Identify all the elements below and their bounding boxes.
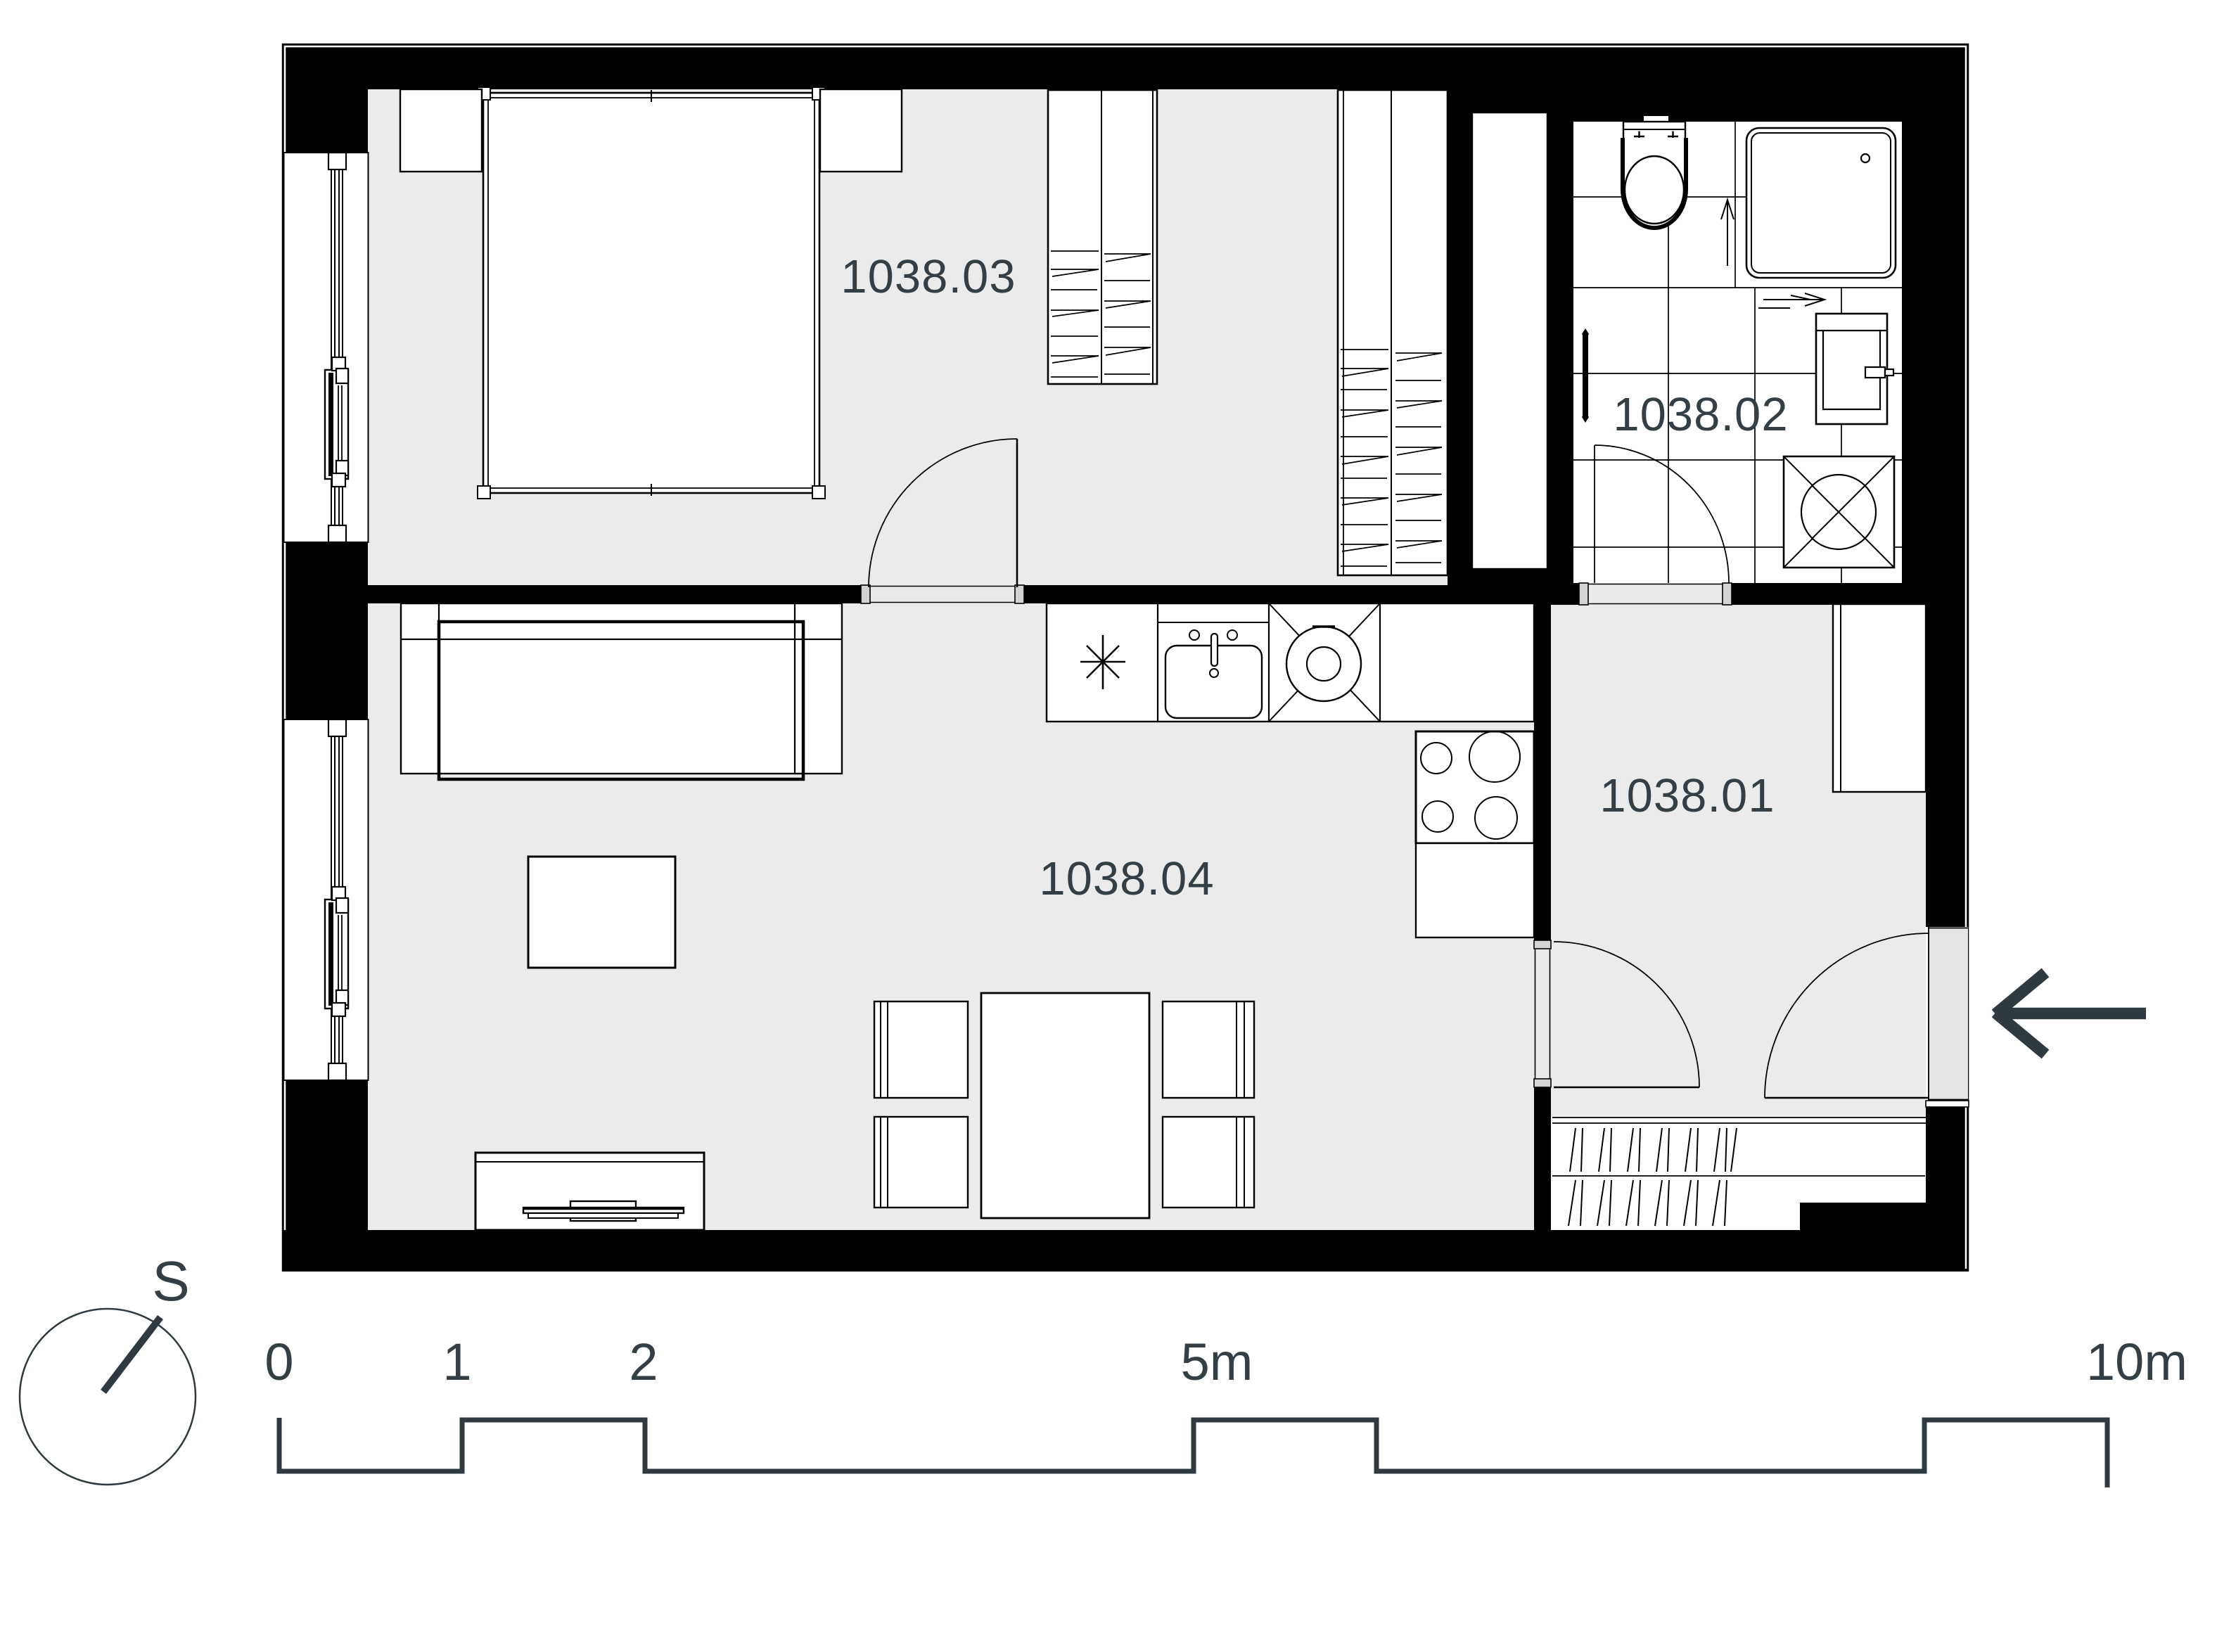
- svg-text:10m: 10m: [2086, 1333, 2187, 1391]
- svg-text:1038.02: 1038.02: [1613, 388, 1788, 441]
- svg-text:5m: 5m: [1181, 1333, 1253, 1391]
- svg-text:1: 1: [442, 1333, 471, 1391]
- svg-text:1038.03: 1038.03: [841, 250, 1016, 303]
- svg-text:1038.01: 1038.01: [1599, 769, 1775, 822]
- svg-text:2: 2: [629, 1333, 658, 1391]
- svg-text:1038.04: 1038.04: [1039, 852, 1214, 905]
- svg-text:S: S: [152, 1250, 189, 1312]
- svg-text:0: 0: [264, 1333, 293, 1391]
